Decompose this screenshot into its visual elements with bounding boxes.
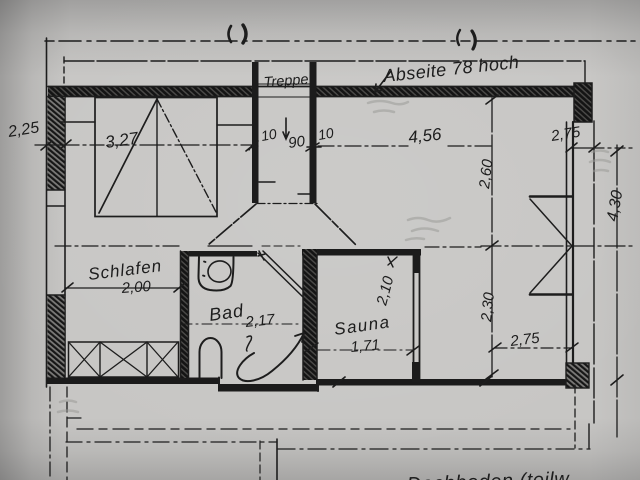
svg-text:Sauna: Sauna <box>333 312 392 339</box>
svg-text:3,27: 3,27 <box>104 128 140 151</box>
svg-text:2,25: 2,25 <box>6 119 41 141</box>
svg-text:Dachboden (teilw: Dachboden (teilw <box>406 468 570 480</box>
svg-text:1,71: 1,71 <box>350 337 381 356</box>
svg-text:10: 10 <box>260 125 278 143</box>
svg-text:4,30: 4,30 <box>604 189 626 223</box>
svg-text:2,75: 2,75 <box>549 123 582 145</box>
svg-text:Treppe: Treppe <box>263 72 309 91</box>
svg-text:2,75: 2,75 <box>508 329 541 350</box>
svg-text:90: 90 <box>287 133 307 152</box>
svg-text:2,17: 2,17 <box>244 311 276 331</box>
svg-text:2,00: 2,00 <box>120 278 152 297</box>
svg-text:Bad: Bad <box>208 300 245 325</box>
svg-text:Abseite 78 hoch: Abseite 78 hoch <box>381 52 520 86</box>
svg-text:2,30: 2,30 <box>478 291 498 323</box>
svg-text:2,60: 2,60 <box>476 158 497 191</box>
svg-text:2,10: 2,10 <box>373 274 397 308</box>
svg-text:4,56: 4,56 <box>407 125 442 147</box>
svg-text:10: 10 <box>317 124 335 142</box>
